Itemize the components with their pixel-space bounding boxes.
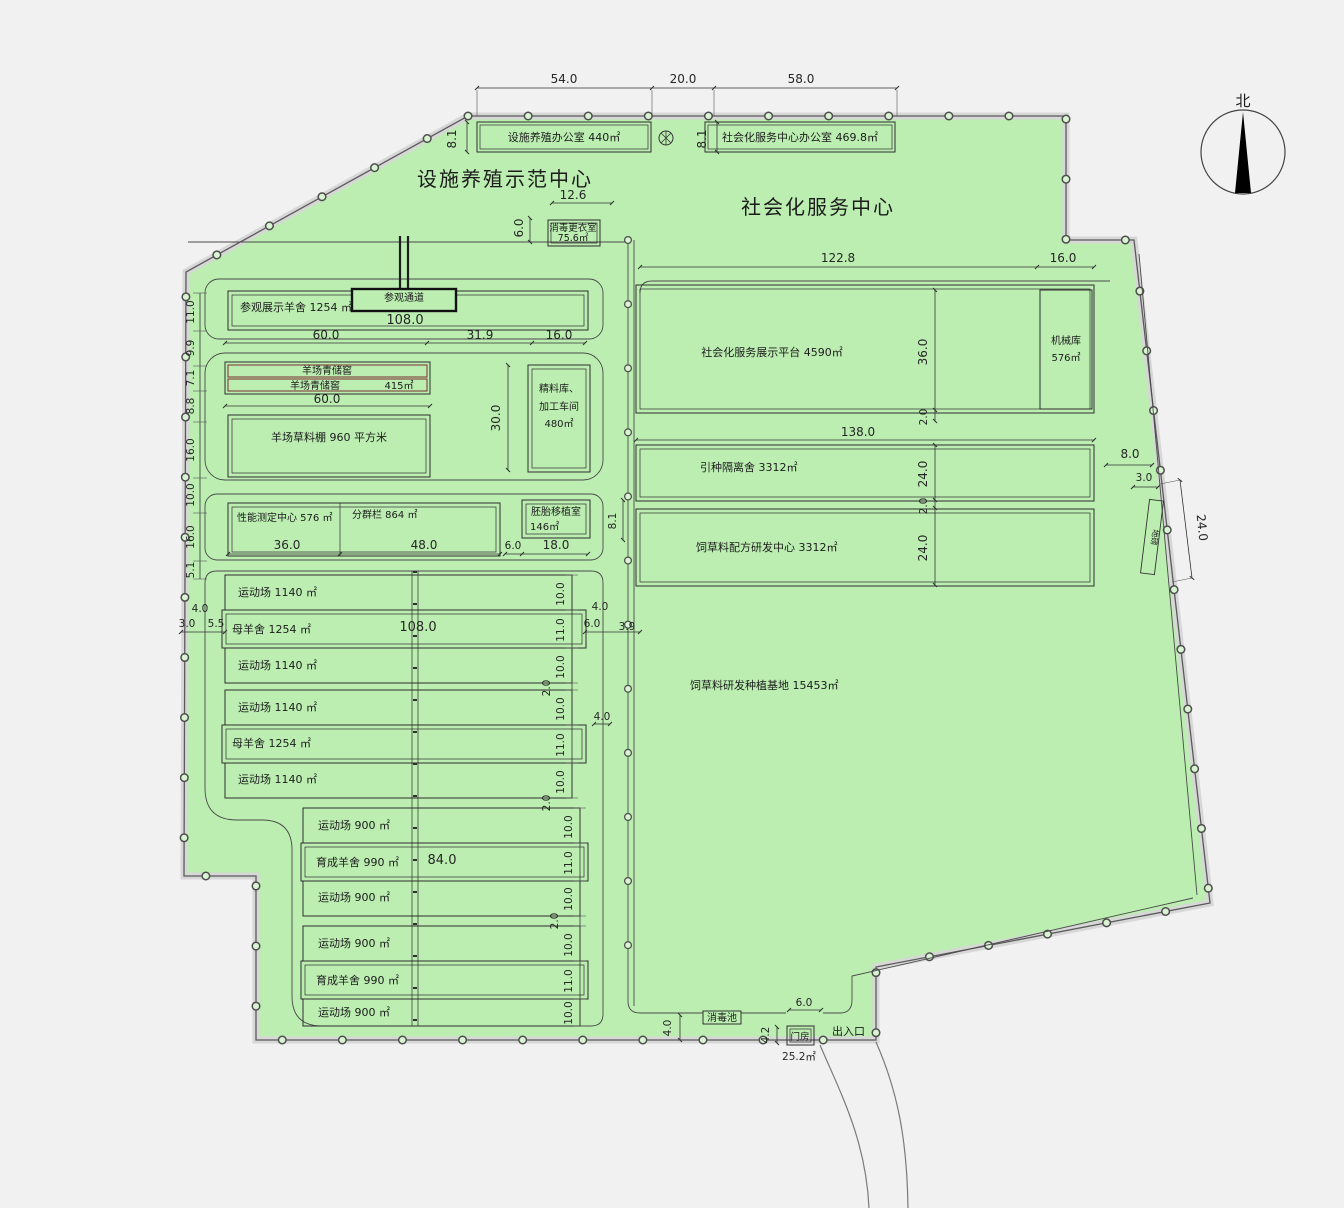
machinery-label-1: 机械库	[1051, 334, 1081, 347]
platform-label: 社会化服务展示平台 4590㎡	[701, 345, 843, 359]
dim-perf-48: 48.0	[411, 538, 438, 552]
dim-row-h: 10.0	[563, 815, 575, 838]
dim-left-2: 7.1	[185, 370, 197, 387]
dim-left-3: 8.8	[185, 398, 197, 415]
north-arrow: 北	[1201, 92, 1285, 194]
dim-gap-2: 2.0	[918, 409, 930, 426]
dim-row-h: 10.0	[555, 655, 567, 678]
embryo-label-1: 胚胎移植室	[531, 505, 581, 518]
dim-lb-55: 5.5	[208, 618, 225, 630]
dim-row-gap: 2.0	[549, 913, 561, 930]
perf-center-label: 性能测定中心 576 ㎡	[237, 511, 332, 524]
visit-corridor-label: 参观通道	[384, 291, 424, 304]
dim-left-0: 11.0	[185, 300, 197, 323]
dim-lb-3: 3.0	[179, 618, 196, 630]
dim-plat-h: 36.0	[916, 339, 930, 366]
dim-gate-w: 6.0	[796, 997, 813, 1009]
dim-rt-16: 16.0	[1050, 251, 1077, 265]
facility-office-label: 设施养殖办公室 440㎡	[508, 130, 621, 144]
row-label-7: 育成羊舍 990 ㎡	[316, 855, 399, 869]
dim-chain-319: 31.9	[467, 328, 494, 342]
base-label: 饲草料研发种植基地 15453㎡	[690, 678, 839, 692]
dim-r4: 4.0	[594, 711, 611, 723]
dim-h24-b: 24.0	[916, 535, 930, 562]
dim-row-h: 11.0	[563, 851, 575, 874]
row-label-6: 运动场 900 ㎡	[318, 818, 390, 832]
service-zone-title: 社会化服务中心	[741, 195, 895, 219]
dim-row-h: 11.0	[563, 969, 575, 992]
embryo-label-2: 146㎡	[530, 521, 559, 533]
silo-area-label: 415㎡	[384, 380, 413, 392]
dim-left-1: 9.9	[185, 340, 197, 357]
dim-left-6: 16.0	[185, 525, 197, 548]
dim-lb-4: 4.0	[192, 603, 209, 615]
dim-feed-h: 30.0	[489, 405, 503, 432]
dim-or-24: 24.0	[1194, 514, 1211, 542]
forage-shed-label: 羊场草料棚 960 平方米	[271, 430, 387, 444]
dim-dc-w: 12.6	[560, 188, 587, 202]
row-label-5: 运动场 1140 ㎡	[238, 772, 317, 786]
dim-row-h: 10.0	[555, 770, 567, 793]
dim-office-h-right: 8.1	[695, 129, 709, 148]
gatehouse-area-label: 25.2㎡	[782, 1051, 816, 1063]
dim-perf-36: 36.0	[274, 538, 301, 552]
gatehouse-label: 门房	[790, 1031, 809, 1043]
dim-silo-w: 60.0	[314, 392, 341, 406]
row-label-4: 母羊舍 1254 ㎡	[232, 736, 311, 750]
dim-or-3: 3.0	[1136, 472, 1153, 484]
row-label-9: 运动场 900 ㎡	[318, 936, 390, 950]
dim-gate-h: 4.2	[760, 1027, 772, 1044]
dim-left-4: 16.0	[185, 438, 197, 461]
dim-h24-a: 24.0	[916, 461, 930, 488]
dim-rb-6: 6.0	[584, 618, 601, 630]
formula-label: 饲草料配方研发中心 3312㎡	[696, 540, 838, 554]
dim-pool-h: 4.0	[662, 1020, 674, 1037]
disinfect-pool-label: 消毒池	[707, 1011, 737, 1024]
silo-2-label: 羊场青储窖	[290, 379, 340, 392]
row-label-11: 运动场 900 ㎡	[318, 1005, 390, 1019]
dim-row-h: 11.0	[555, 733, 567, 756]
dim-embryo-h: 8.1	[607, 513, 619, 530]
dim-barn-w: 108.0	[386, 313, 423, 328]
site-plan-canvas: 北 54.0 20.0 58.0 8.1 8.1 设施养殖办公室 440㎡ 社会…	[0, 0, 1344, 1208]
dim-perf-18: 18.0	[543, 538, 570, 552]
north-arrow-needle	[1235, 112, 1251, 193]
dim-w138: 138.0	[841, 425, 875, 439]
dim-row-h: 10.0	[555, 697, 567, 720]
row-label-1: 母羊舍 1254 ㎡	[232, 622, 311, 636]
display-barn-label: 参观展示羊舍 1254 ㎡	[240, 300, 352, 314]
site-plan-drawing: 北 54.0 20.0 58.0 8.1 8.1 设施养殖办公室 440㎡ 社会…	[0, 0, 1344, 1208]
north-label: 北	[1235, 92, 1250, 110]
dim-row-h: 10.0	[563, 887, 575, 910]
group-pen-label: 分群栏 864 ㎡	[352, 508, 417, 521]
row-label-2: 运动场 1140 ㎡	[238, 658, 317, 672]
dim-ewe-w: 108.0	[399, 620, 436, 635]
dim-top-20: 20.0	[670, 72, 697, 86]
dim-dc-h: 6.0	[512, 218, 526, 237]
dim-row-h: 10.0	[563, 1001, 575, 1024]
weighbridge-label: 地磅	[1149, 529, 1161, 546]
dim-office-h-left: 8.1	[445, 129, 459, 148]
entrance-road	[820, 1045, 869, 1208]
dim-rb-4: 4.0	[592, 601, 609, 613]
dim-top-58: 58.0	[788, 72, 815, 86]
dim-row-gap: 2.0	[541, 680, 553, 697]
row-label-3: 运动场 1140 ㎡	[238, 700, 317, 714]
dim-or-8: 8.0	[1120, 447, 1139, 461]
dim-row-h: 10.0	[555, 582, 567, 605]
dim-chain-60: 60.0	[313, 328, 340, 342]
dim-rb-39: 3.9	[619, 621, 636, 633]
dim-row-h: 11.0	[555, 618, 567, 641]
feed-store-label-2: 加工车间	[539, 400, 579, 413]
row-label-0: 运动场 1140 ㎡	[238, 585, 317, 599]
dim-top-54: 54.0	[551, 72, 578, 86]
disinfect-change-area: 75.6㎡	[558, 233, 589, 244]
dim-chain-16: 16.0	[546, 328, 573, 342]
dim-left-7: 5.1	[185, 562, 197, 579]
row-label-8: 运动场 900 ㎡	[318, 890, 390, 904]
dim-rt-1228: 122.8	[821, 251, 855, 265]
entrance-label: 出入口	[832, 1024, 865, 1038]
feed-store-label-1: 精料库、	[539, 382, 579, 395]
dim-young-w: 84.0	[428, 853, 457, 868]
service-office-label: 社会化服务中心办公室 469.8㎡	[722, 130, 878, 144]
dim-row-gap: 2.0	[541, 795, 553, 812]
machinery-label-2: 576㎡	[1051, 352, 1080, 364]
quarantine-label: 引种隔离舍 3312㎡	[700, 460, 798, 474]
silo-1-label: 羊场青储窖	[302, 364, 352, 377]
dim-row-h: 10.0	[563, 933, 575, 956]
feed-store-label-3: 480㎡	[544, 418, 573, 430]
dim-gap-2b: 2.0	[918, 498, 930, 515]
dim-perf-6: 6.0	[505, 540, 522, 552]
row-label-10: 育成羊舍 990 ㎡	[316, 973, 399, 987]
dim-left-5: 10.0	[185, 483, 197, 506]
